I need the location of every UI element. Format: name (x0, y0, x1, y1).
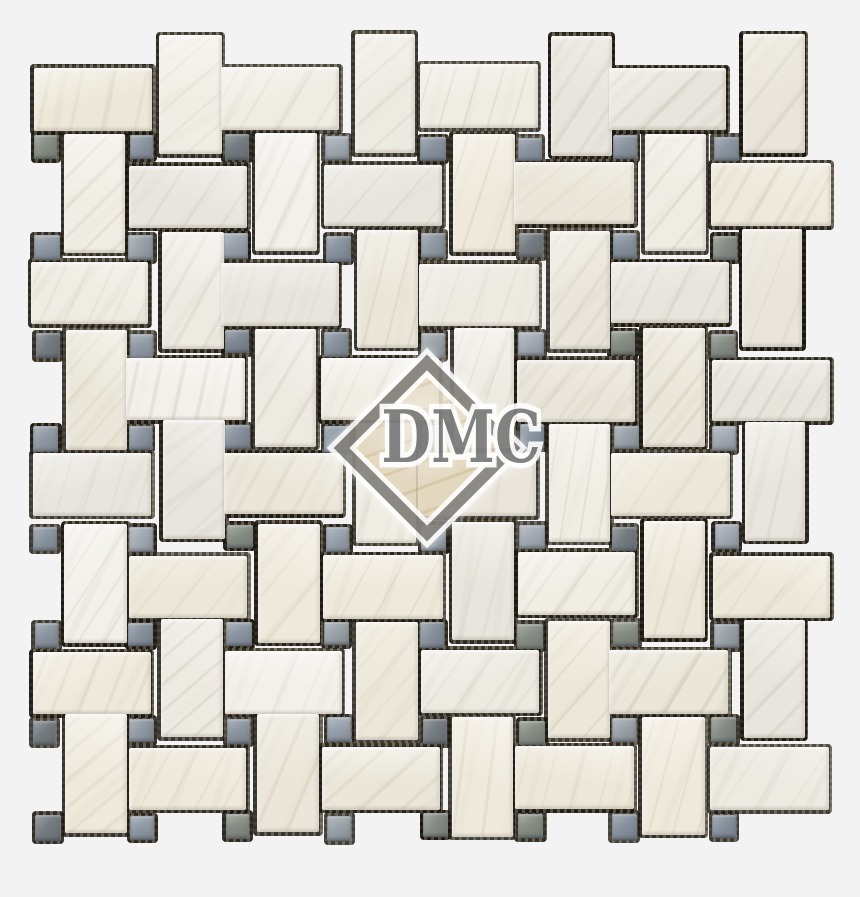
accent-dot (421, 525, 446, 551)
accent-dot (420, 137, 445, 161)
marble-tile-horizontal (710, 747, 828, 810)
accent-dot (128, 623, 153, 647)
accent-dot (714, 137, 739, 161)
accent-dot (714, 624, 739, 649)
accent-dot (612, 527, 635, 552)
marble-tile-vertical (642, 717, 705, 834)
accent-dot (519, 721, 545, 746)
marble-tile-horizontal (611, 262, 729, 323)
accent-dot (519, 525, 544, 550)
marble-tile-vertical (255, 329, 317, 447)
accent-dot (711, 334, 734, 359)
accent-dot (223, 233, 247, 259)
marble-tile-horizontal (323, 555, 442, 618)
marble-tile-vertical (643, 328, 705, 447)
accent-dot (225, 330, 250, 353)
accent-dot (712, 815, 735, 838)
accent-dot (129, 426, 152, 449)
accent-dot (517, 624, 543, 649)
marble-tile-horizontal (129, 556, 248, 618)
accent-dot (225, 134, 249, 159)
accent-dot (518, 138, 542, 161)
marble-tile-vertical (163, 420, 225, 539)
accent-dot (423, 813, 448, 836)
accent-dot (612, 814, 637, 840)
accent-dot (129, 719, 154, 743)
accent-dot (130, 135, 153, 159)
marble-tile-vertical (64, 524, 127, 643)
marble-tile-horizontal (609, 650, 728, 714)
marble-tile-vertical (356, 622, 418, 740)
accent-dot (712, 426, 735, 451)
marble-tile-vertical (452, 522, 514, 641)
marble-tile-vertical (644, 521, 705, 638)
marble-tile-vertical (159, 35, 221, 154)
marble-tile-horizontal (321, 358, 439, 420)
marble-tile-vertical (550, 231, 610, 349)
accent-dot (713, 236, 737, 260)
marble-tile-vertical (258, 524, 320, 643)
accent-dot (518, 814, 544, 839)
marble-tile-horizontal (712, 360, 830, 421)
accent-dot (614, 426, 639, 449)
marble-tile-horizontal (225, 651, 342, 713)
accent-dot (421, 333, 445, 359)
accent-dot (227, 719, 251, 744)
accent-dot (519, 233, 543, 258)
accent-dot (518, 332, 543, 356)
accent-dot (34, 135, 57, 160)
marble-tile-horizontal (31, 262, 148, 325)
marble-tile-vertical (453, 134, 515, 252)
accent-dot (613, 135, 636, 159)
marble-tile-horizontal (129, 166, 247, 228)
accent-dot (326, 236, 350, 262)
marble-tile-horizontal (515, 746, 634, 809)
marble-tile-horizontal (517, 360, 635, 422)
accent-dot (325, 136, 349, 159)
accent-dot (421, 233, 445, 258)
accent-dot (423, 719, 447, 744)
accent-dot (324, 622, 348, 646)
mosaic-sheet (0, 0, 860, 897)
accent-dot (130, 334, 153, 360)
accent-dot (327, 717, 350, 742)
marble-tile-horizontal (221, 263, 339, 326)
marble-tile-vertical (744, 620, 805, 738)
product-photo: DMC DMC (0, 0, 860, 897)
marble-tile-vertical (645, 134, 706, 251)
marble-tile-vertical (454, 328, 514, 448)
marble-tile-horizontal (126, 358, 245, 420)
marble-tile-horizontal (418, 453, 536, 516)
accent-dot (327, 816, 351, 842)
marble-tile-horizontal (609, 68, 726, 130)
marble-tile-horizontal (421, 650, 539, 713)
accent-dot (36, 333, 60, 358)
marble-tile-horizontal (221, 67, 339, 130)
accent-dot (34, 235, 60, 259)
accent-dot (324, 426, 348, 452)
accent-dot (35, 623, 58, 648)
marble-tile-horizontal (420, 64, 537, 128)
marble-tile-horizontal (224, 453, 343, 514)
accent-dot (611, 331, 635, 354)
marble-tile-horizontal (324, 165, 442, 226)
marble-tile-vertical (551, 36, 612, 156)
accent-dot (227, 525, 253, 548)
accent-dot (128, 235, 153, 260)
marble-tile-vertical (452, 717, 513, 837)
marble-tile-vertical (549, 424, 611, 542)
accent-dot (420, 622, 444, 648)
marble-tile-vertical (66, 330, 127, 450)
marble-tile-vertical (357, 230, 418, 348)
accent-dot (226, 622, 252, 646)
marble-tile-horizontal (514, 162, 634, 224)
accent-dot (35, 815, 60, 841)
accent-dot (226, 814, 250, 839)
marble-tile-horizontal (713, 556, 830, 618)
accent-dot (224, 425, 250, 449)
accent-dot (33, 426, 58, 451)
accent-dot (711, 717, 736, 742)
accent-dot (612, 718, 636, 741)
marble-tile-vertical (355, 34, 415, 154)
marble-tile-vertical (743, 34, 805, 153)
marble-tile-vertical (255, 133, 317, 252)
marble-tile-vertical (64, 134, 125, 253)
accent-dot (129, 527, 153, 553)
accent-dot (33, 721, 57, 745)
marble-tile-horizontal (518, 552, 636, 615)
marble-tile-horizontal (129, 748, 246, 809)
marble-tile-horizontal (611, 453, 729, 516)
marble-tile-vertical (745, 422, 805, 540)
marble-tile-vertical (356, 423, 417, 543)
marble-tile-horizontal (33, 652, 151, 714)
accent-dot (324, 332, 348, 357)
accent-dot (520, 424, 544, 448)
marble-tile-horizontal (34, 68, 152, 132)
marble-tile-horizontal (711, 163, 831, 226)
accent-dot (326, 527, 350, 552)
accent-dot (33, 527, 58, 550)
marble-tile-vertical (257, 714, 319, 832)
marble-tile-horizontal (419, 264, 539, 326)
marble-tile-horizontal (322, 747, 440, 810)
accent-dot (613, 622, 638, 646)
accent-dot (422, 425, 446, 451)
accent-dot (715, 524, 739, 549)
marble-tile-vertical (742, 229, 802, 347)
marble-tile-vertical (548, 621, 610, 738)
marble-tile-vertical (162, 232, 224, 349)
marble-tile-horizontal (33, 453, 152, 515)
accent-dot (613, 233, 636, 259)
marble-tile-vertical (161, 619, 223, 737)
marble-tile-vertical (65, 714, 127, 833)
accent-dot (130, 816, 154, 840)
